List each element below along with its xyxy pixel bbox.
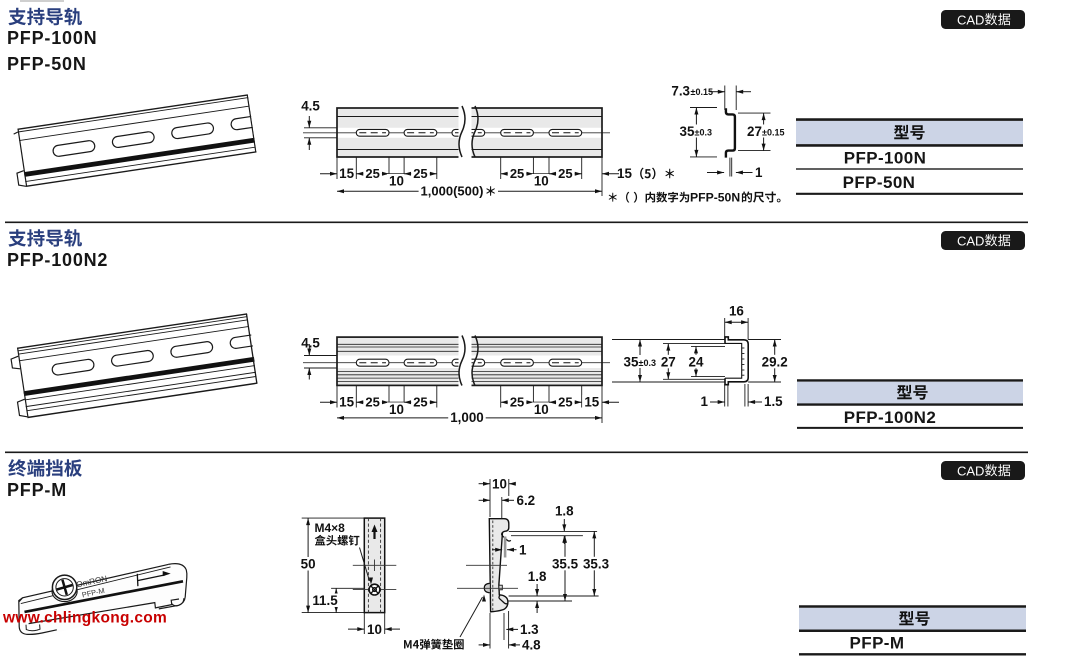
svg-text:7.3: 7.3 [671, 84, 690, 99]
svg-text:1.5: 1.5 [764, 394, 783, 409]
svg-text:25: 25 [510, 166, 524, 181]
svg-text:25: 25 [558, 166, 572, 181]
svg-text:27: 27 [747, 124, 762, 139]
svg-text:CAD: CAD [957, 12, 984, 27]
svg-text:10: 10 [492, 476, 507, 491]
svg-text:35: 35 [680, 124, 695, 139]
svg-text:PFP-M: PFP-M [7, 480, 67, 500]
svg-text:29.2: 29.2 [762, 354, 788, 369]
svg-text:www.chlingkong.com: www.chlingkong.com [2, 610, 167, 627]
svg-text:PFP-100N2: PFP-100N2 [844, 408, 936, 427]
svg-text:25: 25 [510, 394, 524, 409]
svg-text:PFP-50N: PFP-50N [7, 54, 87, 74]
svg-text:1.8: 1.8 [528, 569, 547, 584]
svg-text:27: 27 [661, 354, 676, 369]
svg-text:PFP-50N: PFP-50N [843, 173, 916, 192]
svg-text:25: 25 [365, 394, 379, 409]
svg-text:35: 35 [624, 354, 639, 369]
svg-text:11.5: 11.5 [312, 593, 338, 608]
svg-text:1: 1 [701, 394, 709, 409]
svg-text:M4×8: M4×8 [315, 521, 346, 535]
svg-text:35.5: 35.5 [552, 556, 579, 571]
svg-text:15: 15 [339, 166, 354, 181]
svg-text:24: 24 [689, 354, 704, 369]
svg-text:±0.3: ±0.3 [695, 127, 712, 137]
svg-text:1.3: 1.3 [520, 622, 539, 637]
svg-text:16: 16 [729, 304, 744, 319]
svg-text:15: 15 [339, 395, 354, 410]
svg-text:35.3: 35.3 [583, 556, 609, 571]
svg-text:25: 25 [365, 166, 379, 181]
svg-text:CAD: CAD [957, 463, 984, 478]
svg-text:±0.3: ±0.3 [639, 358, 656, 368]
svg-text:±0.15: ±0.15 [691, 87, 713, 97]
svg-text:15: 15 [584, 395, 599, 410]
svg-text:1.8: 1.8 [555, 504, 574, 519]
svg-text:15: 15 [617, 166, 632, 181]
svg-text:10: 10 [367, 622, 382, 637]
svg-text:25: 25 [558, 394, 572, 409]
svg-text:CAD: CAD [957, 233, 984, 248]
svg-text:6.2: 6.2 [517, 493, 536, 508]
svg-text:25: 25 [413, 166, 427, 181]
svg-text:10: 10 [389, 402, 404, 417]
svg-text:±0.15: ±0.15 [762, 127, 784, 137]
svg-text:1,000(500): 1,000(500) [421, 184, 484, 199]
svg-text:25: 25 [413, 394, 427, 409]
svg-text:10: 10 [534, 402, 549, 417]
svg-text:PFP-50N: PFP-50N [690, 191, 740, 205]
svg-text:1: 1 [755, 165, 763, 180]
svg-text:10: 10 [534, 174, 549, 189]
svg-text:10: 10 [389, 174, 404, 189]
svg-text:1,000: 1,000 [450, 410, 484, 425]
svg-text:PFP-100N: PFP-100N [7, 28, 97, 48]
svg-text:4.5: 4.5 [301, 99, 320, 114]
svg-text:50: 50 [301, 557, 316, 572]
svg-text:4.8: 4.8 [522, 638, 541, 653]
svg-text:1: 1 [519, 542, 527, 557]
svg-text:PFP-100N2: PFP-100N2 [7, 250, 108, 270]
svg-text:4.5: 4.5 [301, 336, 320, 351]
svg-text:PFP-M: PFP-M [850, 634, 905, 653]
svg-text:PFP-100N: PFP-100N [844, 149, 927, 168]
